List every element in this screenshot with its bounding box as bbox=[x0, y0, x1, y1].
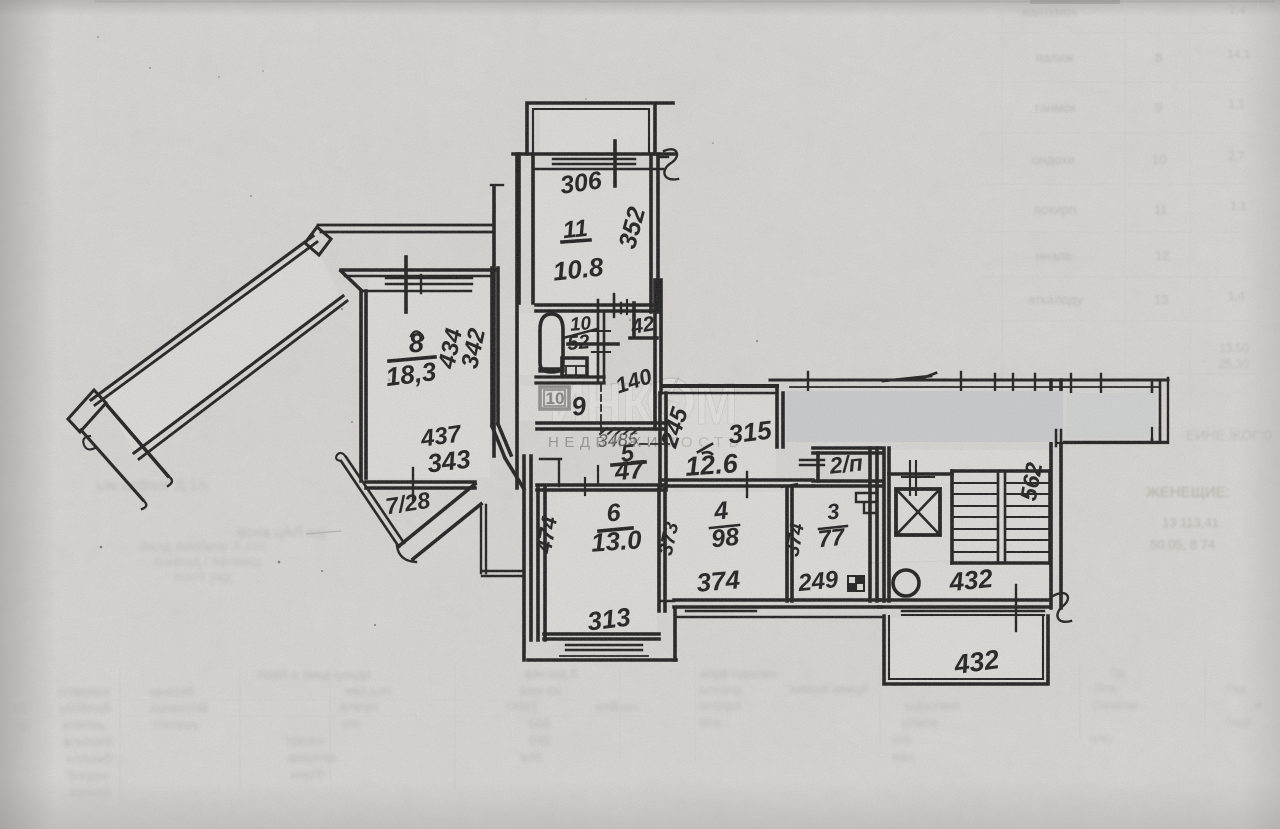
svg-text:котнлб: котнлб bbox=[70, 785, 111, 800]
svg-text:нтспрл: нтспрл bbox=[700, 698, 741, 713]
svg-text:яохирп: яохирп bbox=[1034, 202, 1076, 217]
svg-text:влнлого: влнлого bbox=[64, 734, 112, 749]
svg-text:нач: нач bbox=[893, 749, 914, 764]
svg-text:313: 313 bbox=[586, 601, 633, 636]
svg-text:елйнач: елйнач bbox=[596, 699, 639, 714]
svg-text:1,1: 1,1 bbox=[1228, 97, 1245, 111]
svg-text:танмок: танмок bbox=[1034, 100, 1076, 115]
svg-text:12: 12 bbox=[1155, 248, 1169, 263]
svg-text:315: 315 bbox=[727, 414, 774, 449]
svg-text:Пд: Пд bbox=[1110, 667, 1125, 679]
svg-text:2/п: 2/п bbox=[827, 449, 864, 478]
svg-text:ьтсйещб: ьтсйещб bbox=[60, 700, 111, 715]
svg-text:яанткмок: яанткмок bbox=[1022, 4, 1077, 19]
svg-text:ым икфаог Д.1А: ым икфаог Д.1А bbox=[96, 477, 208, 494]
svg-text:25,30: 25,30 bbox=[1219, 357, 1249, 371]
svg-text:апрв пднлжя: апрв пднлжя bbox=[700, 666, 777, 681]
svg-text:9: 9 bbox=[1155, 100, 1162, 115]
svg-text:432: 432 bbox=[951, 644, 1001, 680]
svg-text:3: 3 bbox=[826, 498, 841, 524]
svg-text:1,1: 1,1 bbox=[1230, 199, 1247, 213]
svg-text:ЕИНЕ ЖОГ:0: ЕИНЕ ЖОГ:0 bbox=[1186, 427, 1272, 443]
svg-text:йелд йонбечу А лтс: йелд йонбечу А лтс bbox=[140, 538, 267, 554]
svg-text:52: 52 bbox=[566, 331, 590, 355]
svg-text:4: 4 bbox=[712, 496, 730, 525]
svg-text:8: 8 bbox=[407, 327, 425, 358]
svg-text:ытсачу: ытсачу bbox=[700, 682, 742, 697]
svg-text:в: в bbox=[1256, 699, 1262, 711]
svg-text:1,4: 1,4 bbox=[1228, 289, 1245, 303]
svg-text:18,3: 18,3 bbox=[384, 356, 438, 392]
svg-text:13.0: 13.0 bbox=[590, 524, 643, 557]
svg-text:ттеперь: ттеперь bbox=[152, 717, 199, 732]
svg-text:2,7: 2,7 bbox=[1228, 149, 1245, 163]
svg-text:ббб: ббб bbox=[528, 716, 550, 731]
svg-text:пПО: пПО bbox=[1090, 734, 1113, 746]
svg-text:ЖЕНЕЩИЕ:: ЖЕНЕЩИЕ: bbox=[1146, 484, 1230, 501]
svg-text:ого: ого bbox=[342, 716, 361, 731]
svg-text:14,1: 14,1 bbox=[1227, 47, 1251, 61]
svg-text:отο: отο bbox=[700, 715, 720, 730]
svg-text:Ппж: Ппж bbox=[1095, 683, 1117, 695]
svg-text:нвл ызч: нвл ызч bbox=[345, 683, 392, 698]
svg-text:13 113,41: 13 113,41 bbox=[1162, 515, 1219, 530]
svg-text:взн шд б: взн шд б bbox=[525, 666, 578, 681]
svg-text:249: 249 bbox=[796, 566, 840, 597]
svg-text:блгрзн: блгрзн bbox=[68, 768, 107, 783]
svg-text:42: 42 bbox=[628, 312, 656, 339]
svg-text:13,50: 13,50 bbox=[1219, 341, 1249, 355]
svg-text:12.6: 12.6 bbox=[684, 448, 739, 482]
svg-text:Терр: Терр bbox=[1226, 717, 1250, 729]
svg-text:влб: влб bbox=[520, 749, 542, 764]
svg-text:343: 343 bbox=[426, 443, 473, 478]
svg-text:10.8: 10.8 bbox=[551, 251, 605, 286]
svg-text:ондохи: ондохи bbox=[1032, 152, 1075, 167]
svg-text:ыдзсгмнт: ыдзсгмнт bbox=[905, 698, 961, 713]
svg-text:Снлмснп: Снлмснп bbox=[1092, 700, 1138, 712]
svg-text:10: 10 bbox=[1152, 152, 1166, 167]
svg-text:Пед: Пед bbox=[1226, 683, 1247, 695]
svg-text:10: 10 bbox=[546, 389, 565, 408]
svg-text:8: 8 bbox=[1155, 50, 1162, 65]
svg-text:влкчрт: влкчрт bbox=[340, 699, 380, 714]
svg-text:вам ен: вам ен bbox=[520, 683, 561, 698]
svg-text:ото: ото bbox=[892, 732, 912, 747]
svg-text:ыняозб: ыняозб bbox=[150, 684, 194, 699]
svg-text:7,4: 7,4 bbox=[1229, 3, 1246, 17]
svg-text:77: 77 bbox=[817, 524, 848, 554]
svg-text:13: 13 bbox=[1154, 292, 1168, 307]
svg-text:нлвле: нлвле bbox=[902, 715, 938, 730]
svg-text:432: 432 bbox=[947, 563, 995, 598]
svg-text:47: 47 bbox=[613, 454, 647, 487]
svg-text:нналв: нналв bbox=[1036, 248, 1072, 263]
svg-text:306: 306 bbox=[558, 166, 604, 200]
svg-text:атмлнь: атмлнь bbox=[62, 717, 106, 732]
svg-text:3485: 3485 bbox=[597, 429, 639, 451]
svg-text:мант увд: мант увд bbox=[174, 568, 232, 584]
svg-text:хыннад і яаткмщ: хыннад і яаткмщ bbox=[152, 553, 261, 569]
svg-text:нпргб: нпргб bbox=[290, 767, 324, 782]
svg-text:нлложб: нлложб bbox=[66, 751, 112, 766]
svg-text:плвмйнл: плвмйнл bbox=[58, 684, 110, 699]
svg-text:ш: ш bbox=[16, 717, 26, 732]
svg-text:ш: ш bbox=[14, 700, 24, 715]
svg-text:яалиж: яалиж bbox=[1036, 50, 1074, 65]
svg-text:аткалоду: аткалоду bbox=[1028, 292, 1083, 307]
svg-text:апкртлр: апкртлр bbox=[288, 750, 335, 765]
svg-text:11: 11 bbox=[561, 215, 589, 244]
svg-text:374: 374 bbox=[695, 564, 741, 598]
svg-text:тркого: тркого bbox=[286, 733, 324, 748]
svg-text:Нзвп а тмкд цлндр: Нзвп а тмкд цлндр bbox=[258, 667, 371, 682]
svg-text:50.05, 8 74: 50.05, 8 74 bbox=[1150, 537, 1215, 552]
svg-text:хиншя нвицй: хиншя нвицй bbox=[790, 681, 868, 696]
svg-text:тХМ1: тХМ1 bbox=[505, 699, 538, 714]
svg-text:98: 98 bbox=[710, 523, 741, 554]
svg-text:хынвелзй: хынвелзй bbox=[150, 700, 207, 715]
svg-text:696: 696 bbox=[528, 733, 550, 748]
svg-text:11: 11 bbox=[1154, 202, 1168, 217]
